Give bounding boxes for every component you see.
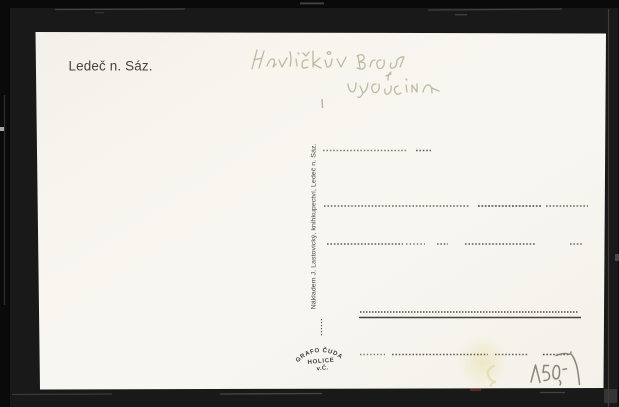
svg-text:Ledeč n. Sáz.: Ledeč n. Sáz. xyxy=(69,59,153,74)
svg-text:v.Č.: v.Č. xyxy=(316,364,329,372)
svg-text:Nákladem J. Lastovický, knihku: Nákladem J. Lastovický, knihkupectví, Le… xyxy=(311,143,318,309)
